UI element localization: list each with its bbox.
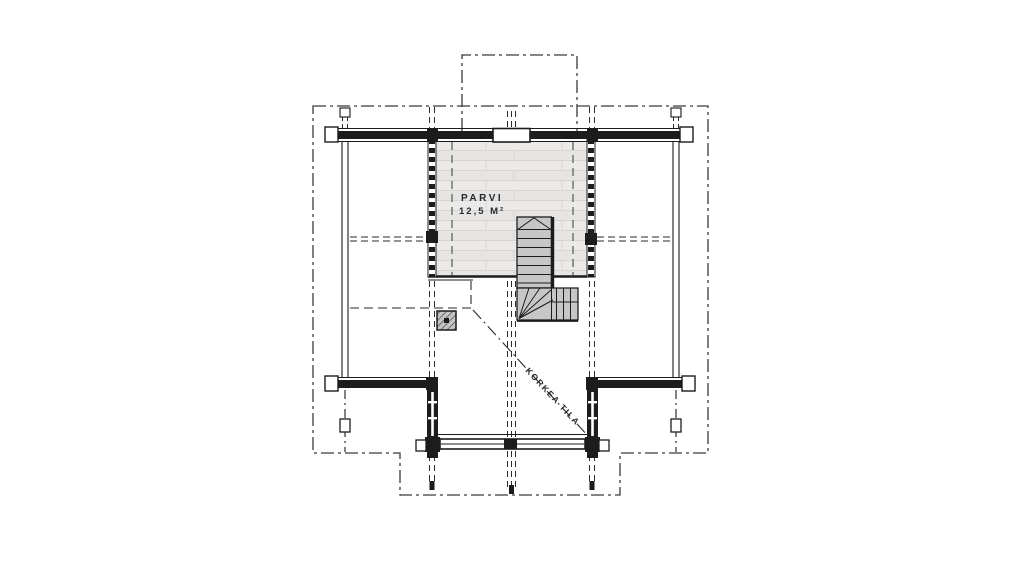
headroom-line-left [350, 237, 427, 241]
wall-end-cap [325, 127, 338, 142]
axis-tick [590, 481, 595, 490]
loft-name-label: PARVI [461, 193, 503, 204]
floor-plan-drawing: PARVI 12,5 M² KORKEA TILA [0, 0, 1024, 576]
corner-post [425, 437, 440, 452]
top-wall [325, 127, 693, 142]
post-marker [340, 419, 350, 432]
bottom-wall-left [325, 376, 438, 450]
post-stub [671, 108, 681, 117]
roof-outline-dormer [462, 55, 577, 131]
axis-tick [430, 481, 435, 490]
sill-stub [416, 440, 426, 451]
wall-end-cap [325, 376, 338, 391]
chimney-flue [444, 318, 449, 323]
post-base [427, 452, 438, 458]
post-marker [671, 419, 681, 432]
bay-window-wall [416, 435, 609, 459]
top-wall-stubs [340, 108, 681, 128]
loft-wall-right [587, 139, 595, 277]
loft-area-label: 12,5 M² [459, 206, 505, 217]
open-space-label: KORKEA TILA [524, 366, 583, 428]
bottom-wall-right [586, 376, 695, 450]
stair-flight [517, 217, 552, 288]
sill-stub [599, 440, 609, 451]
corner-post [585, 437, 600, 452]
wall-junction [585, 233, 597, 245]
window-mullion [504, 439, 517, 450]
wall-end-cap [682, 376, 695, 391]
wall-junction [426, 231, 438, 243]
loft-wall-left [428, 139, 436, 277]
chimney [437, 311, 456, 330]
headroom-line-right [597, 237, 672, 241]
loft-floor [428, 142, 587, 280]
post-base [587, 452, 598, 458]
post-stub [340, 108, 350, 117]
wall-junction [587, 128, 598, 142]
floor-plan-canvas: PARVI 12,5 M² KORKEA TILA [0, 0, 1024, 576]
wall-end-cap [680, 127, 693, 142]
wall-junction [427, 128, 438, 142]
top-window [493, 129, 530, 143]
axis-tick [509, 485, 514, 494]
